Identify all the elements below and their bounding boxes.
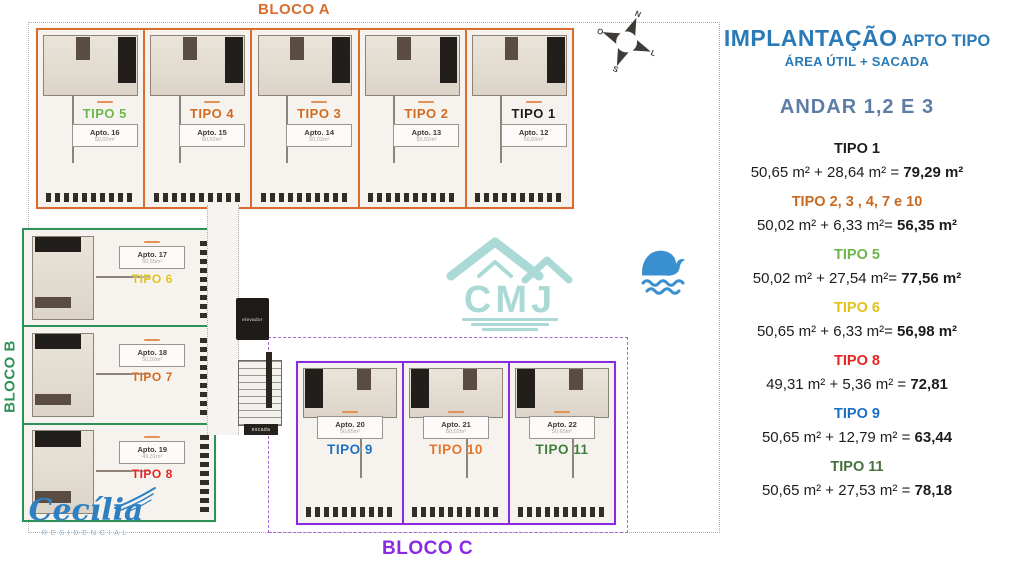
unit-label-group: TIPO 7 Apto. 18 50,02m²	[96, 339, 208, 384]
unit-tipo-label: TIPO 1	[512, 106, 556, 121]
unit-dark-fixture	[35, 431, 81, 446]
unit-dark-fixture-2	[463, 369, 477, 390]
brand-flourish-icon	[113, 486, 157, 512]
unit-label-group: TIPO 10 Apto. 21 50,02m²	[409, 411, 503, 457]
unit-apto-number: Apto. 21	[430, 420, 482, 429]
unit-balcony-rail	[154, 193, 242, 202]
title-suffix: APTO TIPO	[898, 32, 991, 50]
unit-dark-fixture	[517, 369, 535, 407]
legend-area-formula: 50,02 m² + 6,33 m²= 56,35 m²	[690, 217, 1024, 234]
unit-dark-fixture	[305, 369, 323, 407]
unit-label-group: TIPO 11 Apto. 22 50,65m²	[515, 411, 609, 457]
legend-expr: 50,02 m² + 6,33 m²=	[757, 217, 897, 234]
bloco-a-plan: TIPO 5 Apto. 16 50,02m² TIPO 4 Apto. 15 …	[36, 28, 574, 209]
unit-label-group: TIPO 8 Apto. 19 49,31m²	[96, 436, 208, 481]
cmj-smallprint	[461, 318, 559, 331]
unit-dark-fixture-2	[290, 37, 304, 60]
unit-dark-fixture-2	[183, 37, 197, 60]
unit-apto-number: Apto. 16	[79, 128, 131, 137]
legend-result: 56,98 m²	[897, 323, 957, 340]
apartment-unit: TIPO 10 Apto. 21 50,02m²	[402, 363, 508, 523]
unit-dark-fixture	[35, 334, 81, 349]
unit-apto-number: Apto. 12	[508, 128, 560, 137]
stairs-label: escada	[252, 427, 271, 433]
unit-apto-box: Apto. 13 50,02m²	[393, 124, 459, 147]
brand-name: Cecília	[29, 496, 144, 526]
unit-apto-area: 49,31m²	[126, 454, 178, 460]
legend-tipo-label: TIPO 6	[690, 300, 1024, 316]
legend-area-formula: 50,65 m² + 12,79 m² = 63,44	[690, 429, 1024, 446]
roof-inner	[479, 262, 511, 276]
unit-apto-area: 50,65m²	[536, 429, 588, 435]
unit-label-group: TIPO 3 Apto. 14 50,02m²	[284, 101, 355, 147]
cmj-watermark: CMJ	[443, 230, 577, 336]
legend-result: 56,35 m²	[897, 217, 957, 234]
page-subtitle: ÁREA ÚTIL + SACADA	[690, 54, 1024, 69]
apartment-unit: TIPO 5 Apto. 16 50,02m²	[38, 30, 143, 207]
unit-label-group: TIPO 5 Apto. 16 50,02m²	[70, 101, 141, 147]
unit-balcony-rail	[306, 507, 393, 517]
apartment-unit: TIPO 6 Apto. 17 50,65m²	[24, 230, 214, 325]
floors-heading: ANDAR 1,2 E 3	[690, 96, 1024, 119]
unit-dim-mark	[144, 436, 160, 438]
legend-item: TIPO 8 49,31 m² + 5,36 m² = 72,81	[690, 353, 1024, 393]
legend-item: TIPO 1 50,65 m² + 28,64 m² = 79,29 m²	[690, 141, 1024, 181]
wave-icon	[637, 243, 689, 299]
floorplan-page: BLOCO A TIPO 5 Apto. 16 50,02m² TIPO 4 A…	[0, 0, 1024, 575]
legend-item: TIPO 6 50,65 m² + 6,33 m²= 56,98 m²	[690, 300, 1024, 340]
unit-tipo-label: TIPO 11	[535, 442, 588, 457]
unit-dark-fixture-2	[35, 297, 71, 308]
unit-dark-fixture	[332, 37, 350, 83]
apartment-unit: TIPO 1 Apto. 12 50,65m²	[465, 30, 572, 207]
unit-balcony-rail	[475, 193, 563, 202]
unit-label-group: TIPO 6 Apto. 17 50,65m²	[96, 241, 208, 286]
unit-dark-fixture-2	[35, 394, 71, 405]
unit-apto-area: 50,02m²	[79, 137, 131, 143]
elevator: elevador	[236, 298, 269, 340]
unit-dark-fixture-2	[76, 37, 90, 60]
apartment-unit: TIPO 9 Apto. 20 50,65m²	[298, 363, 402, 523]
legend-expr: 50,65 m² + 28,64 m² =	[751, 164, 904, 181]
wave-line-1	[643, 281, 683, 286]
unit-apto-number: Apto. 19	[126, 445, 178, 454]
unit-apto-number: Apto. 20	[324, 420, 376, 429]
compass-circle	[613, 28, 640, 55]
unit-dim-mark	[144, 241, 160, 243]
unit-apto-box: Apto. 12 50,65m²	[501, 124, 567, 147]
legend-tipo-label: TIPO 8	[690, 353, 1024, 369]
legend-area-formula: 50,65 m² + 6,33 m²= 56,98 m²	[690, 323, 1024, 340]
legend-item: TIPO 9 50,65 m² + 12,79 m² = 63,44	[690, 406, 1024, 446]
unit-apto-area: 50,65m²	[324, 429, 376, 435]
legend-tipo-label: TIPO 9	[690, 406, 1024, 422]
apartment-unit: TIPO 2 Apto. 13 50,02m²	[358, 30, 465, 207]
unit-dim-mark	[342, 411, 358, 413]
unit-dark-fixture-2	[505, 37, 519, 60]
unit-apto-box: Apto. 17 50,65m²	[119, 246, 185, 269]
wave-line-2	[647, 289, 679, 294]
apartment-unit: TIPO 11 Apto. 22 50,65m²	[508, 363, 614, 523]
unit-dim-mark	[144, 339, 160, 341]
unit-apto-number: Apto. 17	[126, 250, 178, 259]
legend-result: 77,56 m²	[901, 270, 961, 287]
unit-dark-fixture-2	[397, 37, 411, 60]
unit-apto-area: 50,65m²	[508, 137, 560, 143]
unit-dim-mark	[311, 101, 327, 103]
unit-dark-fixture	[118, 37, 136, 83]
page-title: IMPLANTAÇÃO APTO TIPO	[690, 26, 1024, 51]
apartment-unit: TIPO 4 Apto. 15 50,02m²	[143, 30, 250, 207]
legend-area-formula: 50,02 m² + 27,54 m²= 77,56 m²	[690, 270, 1024, 287]
bloco-b-label: BLOCO B	[2, 312, 19, 442]
unit-apto-box: Apto. 21 50,02m²	[423, 416, 489, 439]
unit-tipo-label: TIPO 2	[404, 106, 448, 121]
legend-tipo-label: TIPO 11	[690, 459, 1024, 475]
bloco-c-label: BLOCO C	[382, 538, 473, 560]
unit-apto-box: Apto. 16 50,02m²	[72, 124, 138, 147]
apartment-unit: TIPO 3 Apto. 14 50,02m²	[250, 30, 357, 207]
unit-balcony-rail	[368, 193, 456, 202]
bloco-b-plan: TIPO 6 Apto. 17 50,65m² TIPO 7 Apto. 18 …	[22, 228, 216, 522]
unit-label-group: TIPO 1 Apto. 12 50,65m²	[498, 101, 569, 147]
unit-apto-number: Apto. 13	[400, 128, 452, 137]
unit-tipo-label: TIPO 6	[132, 272, 173, 286]
unit-dark-fixture	[35, 237, 81, 252]
cmj-text: CMJ	[464, 279, 556, 316]
unit-dark-fixture	[547, 37, 565, 83]
unit-apto-area: 50,02m²	[430, 429, 482, 435]
info-panel: IMPLANTAÇÃO APTO TIPO ÁREA ÚTIL + SACADA…	[690, 0, 1024, 575]
corridor	[207, 205, 239, 435]
title-main: IMPLANTAÇÃO	[724, 25, 898, 51]
unit-balcony-rail	[518, 507, 605, 517]
unit-dark-fixture-2	[569, 369, 583, 390]
unit-apto-number: Apto. 15	[186, 128, 238, 137]
unit-tipo-label: TIPO 3	[297, 106, 341, 121]
brand-subtitle: RESIDENCIAL	[8, 528, 164, 537]
unit-dark-fixture	[225, 37, 243, 83]
unit-dark-fixture	[440, 37, 458, 83]
legend-item: TIPO 2, 3 , 4, 7 e 10 50,02 m² + 6,33 m²…	[690, 194, 1024, 234]
legend-area-formula: 50,65 m² + 27,53 m² = 78,18	[690, 482, 1024, 499]
legend-expr: 49,31 m² + 5,36 m² =	[766, 376, 910, 393]
unit-dim-mark	[97, 101, 113, 103]
roof-small	[525, 260, 569, 280]
unit-label-group: TIPO 4 Apto. 15 50,02m²	[177, 101, 248, 147]
unit-apto-number: Apto. 18	[126, 348, 178, 357]
unit-apto-box: Apto. 14 50,02m²	[286, 124, 352, 147]
legend-item: TIPO 5 50,02 m² + 27,54 m²= 77,56 m²	[690, 247, 1024, 287]
legend-tipo-label: TIPO 5	[690, 247, 1024, 263]
legend-expr: 50,65 m² + 27,53 m² =	[762, 482, 915, 499]
unit-balcony-rail	[46, 193, 134, 202]
unit-apto-number: Apto. 14	[293, 128, 345, 137]
legend-tipo-label: TIPO 1	[690, 141, 1024, 157]
unit-tipo-label: TIPO 5	[83, 106, 127, 121]
legend-result: 78,18	[915, 482, 953, 499]
unit-apto-box: Apto. 15 50,02m²	[179, 124, 245, 147]
unit-apto-area: 50,02m²	[400, 137, 452, 143]
stairs	[238, 360, 282, 426]
unit-dim-mark	[204, 101, 220, 103]
unit-apto-area: 50,02m²	[126, 357, 178, 363]
roof-large	[451, 242, 539, 276]
unit-apto-box: Apto. 22 50,65m²	[529, 416, 595, 439]
legend-result: 72,81	[910, 376, 948, 393]
unit-apto-box: Apto. 20 50,65m²	[317, 416, 383, 439]
unit-tipo-label: TIPO 8	[132, 467, 173, 481]
compass-n: N	[633, 9, 642, 20]
unit-balcony-rail	[412, 507, 499, 517]
stairs-label-bar: escada	[244, 424, 278, 435]
unit-apto-number: Apto. 22	[536, 420, 588, 429]
legend-result: 63,44	[915, 429, 953, 446]
wall-stub	[266, 352, 272, 408]
elevator-label: elevador	[242, 317, 262, 322]
legend-expr: 50,02 m² + 27,54 m²=	[753, 270, 901, 287]
unit-apto-box: Apto. 18 50,02m²	[119, 344, 185, 367]
legend-expr: 50,65 m² + 6,33 m²=	[757, 323, 897, 340]
legend-item: TIPO 11 50,65 m² + 27,53 m² = 78,18	[690, 459, 1024, 499]
wave-crest	[642, 251, 685, 276]
unit-dim-mark	[554, 411, 570, 413]
legend-tipo-label: TIPO 2, 3 , 4, 7 e 10	[690, 194, 1024, 210]
bloco-c-plan: TIPO 9 Apto. 20 50,65m² TIPO 10 Apto. 21…	[296, 361, 616, 525]
unit-label-group: TIPO 2 Apto. 13 50,02m²	[391, 101, 462, 147]
unit-apto-area: 50,02m²	[293, 137, 345, 143]
unit-tipo-label: TIPO 10	[429, 442, 483, 457]
legend-area-formula: 50,65 m² + 28,64 m² = 79,29 m²	[690, 164, 1024, 181]
unit-dim-mark	[526, 101, 542, 103]
unit-tipo-label: TIPO 9	[327, 442, 373, 457]
legend-result: 79,29 m²	[903, 164, 963, 181]
area-legend: TIPO 1 50,65 m² + 28,64 m² = 79,29 m² TI…	[690, 141, 1024, 499]
unit-tipo-label: TIPO 7	[132, 370, 173, 384]
unit-dim-mark	[418, 101, 434, 103]
bloco-a-label: BLOCO A	[258, 1, 330, 18]
unit-apto-box: Apto. 19 49,31m²	[119, 441, 185, 464]
apartment-unit: TIPO 7 Apto. 18 50,02m²	[24, 325, 214, 422]
unit-apto-area: 50,02m²	[186, 137, 238, 143]
legend-area-formula: 49,31 m² + 5,36 m² = 72,81	[690, 376, 1024, 393]
unit-balcony-rail	[261, 193, 349, 202]
unit-dark-fixture-2	[357, 369, 371, 390]
unit-tipo-label: TIPO 4	[190, 106, 234, 121]
unit-apto-area: 50,65m²	[126, 259, 178, 265]
unit-dim-mark	[448, 411, 464, 413]
unit-label-group: TIPO 9 Apto. 20 50,65m²	[303, 411, 397, 457]
unit-dark-fixture	[411, 369, 429, 407]
legend-expr: 50,65 m² + 12,79 m² =	[762, 429, 915, 446]
brand-logo: Cecília RESIDENCIAL	[8, 496, 164, 537]
